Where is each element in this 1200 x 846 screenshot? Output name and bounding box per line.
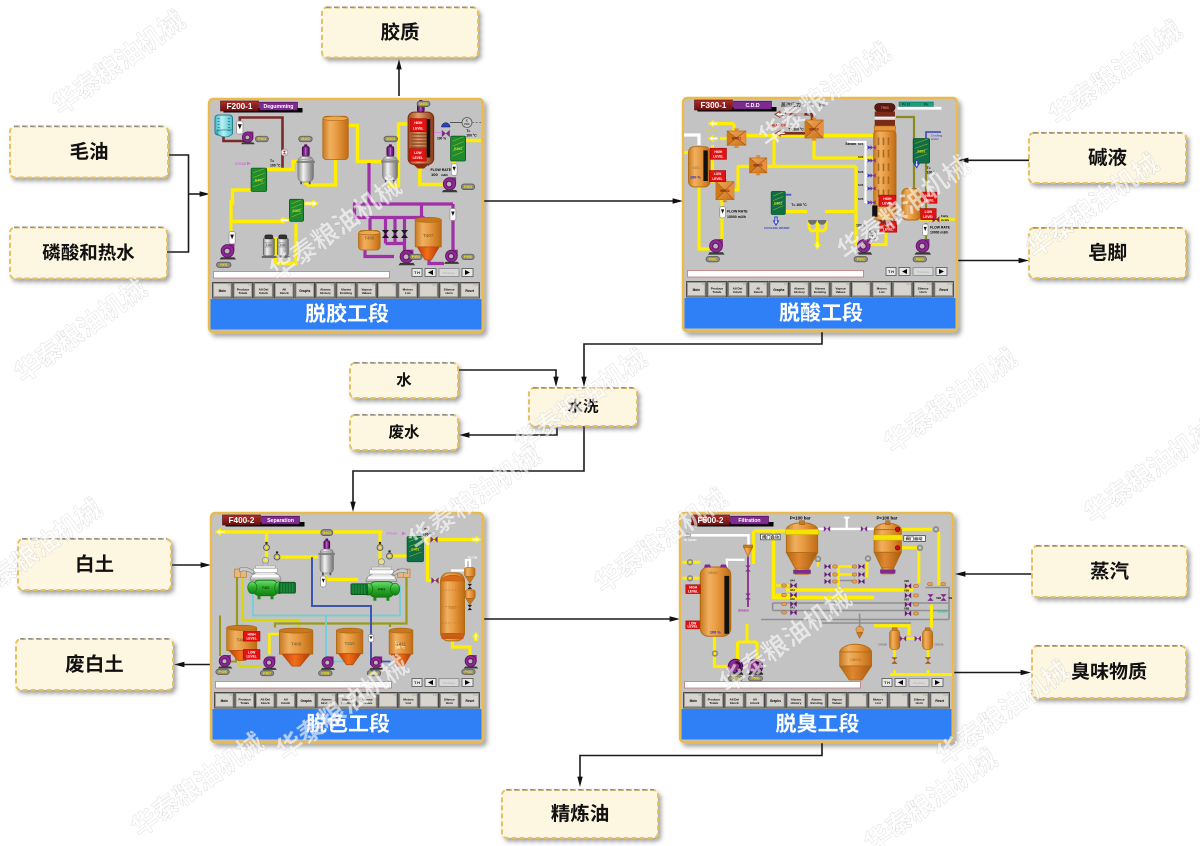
svg-text:F300-1: F300-1 — [701, 101, 727, 110]
svg-text:water: water — [930, 137, 940, 141]
svg-text:Previous: Previous — [443, 271, 455, 275]
svg-text:Horn: Horn — [916, 701, 923, 705]
svg-text:Reset: Reset — [935, 699, 945, 703]
svg-text:Values: Values — [362, 291, 372, 295]
svg-text:SV4: SV4 — [858, 183, 864, 187]
svg-text:List: List — [406, 701, 412, 705]
svg-text:V801: V801 — [692, 166, 700, 170]
svg-text:T407: T407 — [423, 233, 434, 238]
svg-text:VB2: VB2 — [936, 596, 942, 600]
svg-text:Totals: Totals — [712, 290, 721, 294]
svg-text:TH03: TH03 — [881, 106, 889, 110]
svg-text:HIGH: HIGH — [414, 121, 423, 125]
svg-text:LEVEL: LEVEL — [713, 155, 723, 159]
svg-text:Main: Main — [690, 699, 697, 703]
svg-text:M401: M401 — [419, 102, 428, 106]
svg-text:Values: Values — [832, 701, 842, 705]
svg-text:T409: T409 — [291, 642, 302, 647]
svg-text:Previous: Previous — [913, 681, 925, 685]
svg-text:CB004: CB004 — [708, 571, 718, 575]
svg-text:F11: F11 — [903, 693, 908, 697]
svg-text:F12: F12 — [923, 693, 928, 697]
svg-text:T= 100 °C: T= 100 °C — [791, 203, 807, 207]
svg-text:T=: T= — [466, 129, 470, 133]
svg-text:Reset: Reset — [939, 288, 949, 292]
svg-text:P405: P405 — [464, 185, 472, 189]
svg-text:F12: F12 — [453, 693, 458, 697]
svg-text:LOW: LOW — [714, 172, 721, 176]
svg-text:P802: P802 — [857, 257, 865, 261]
svg-text:P406: P406 — [464, 255, 472, 259]
svg-text:M402: M402 — [301, 137, 310, 141]
svg-text:COOLING WATER: COOLING WATER — [764, 226, 790, 230]
svg-text:BR01: BR01 — [732, 136, 741, 140]
svg-text:E401: E401 — [255, 178, 263, 182]
svg-text:Px 10: Px 10 — [902, 103, 911, 107]
svg-text:P408: P408 — [321, 671, 329, 675]
svg-text:F13: F13 — [944, 693, 949, 697]
svg-text:ZHG08: ZHG08 — [878, 643, 887, 647]
svg-text:Totals: Totals — [709, 701, 718, 705]
svg-text:Inlock: Inlock — [280, 291, 289, 295]
svg-text:SV3: SV3 — [858, 170, 864, 174]
svg-text:F12: F12 — [453, 283, 458, 287]
svg-text:100 %: 100 % — [710, 631, 721, 635]
svg-text:M403: M403 — [323, 531, 332, 535]
svg-text:BR02: BR02 — [753, 164, 762, 168]
svg-text:T H: T H — [884, 681, 890, 685]
svg-text:E801: E801 — [917, 149, 925, 153]
svg-text:T H: T H — [414, 271, 420, 275]
svg-text:BR03: BR03 — [809, 127, 818, 131]
svg-text:P403: P403 — [258, 137, 266, 141]
svg-text:100 °C: 100 °C — [395, 646, 405, 650]
svg-text:STEAM: STEAM — [386, 532, 397, 536]
svg-text:Main: Main — [221, 699, 228, 703]
svg-text:F11: F11 — [907, 282, 912, 286]
svg-text:Inlock: Inlock — [259, 291, 268, 295]
svg-text:LEVEL: LEVEL — [687, 625, 697, 629]
svg-text:100 %: 100 % — [437, 137, 446, 141]
svg-text:ZHG09: ZHG09 — [934, 643, 943, 647]
svg-text:LEVEL: LEVEL — [246, 655, 256, 659]
svg-text:History: History — [320, 291, 331, 295]
svg-text:VB6: VB6 — [904, 589, 910, 593]
svg-text:P404: P404 — [412, 255, 420, 259]
svg-text:Inlock: Inlock — [754, 290, 763, 294]
svg-text:FLOW RATE: FLOW RATE — [930, 226, 951, 230]
svg-text:T H: T H — [888, 270, 894, 274]
svg-text:LOW: LOW — [925, 210, 932, 214]
svg-text:P=100 bar: P=100 bar — [790, 515, 811, 520]
svg-text:Values: Values — [836, 290, 846, 294]
svg-text:LEVEL: LEVEL — [413, 156, 423, 160]
svg-text:F10: F10 — [882, 693, 887, 697]
svg-text:STEAM: STEAM — [235, 162, 247, 166]
svg-text:VA4: VA4 — [790, 579, 795, 583]
svg-text:TO GM: TO GM — [468, 556, 478, 560]
svg-text:100 °C: 100 °C — [466, 134, 477, 138]
svg-text:F403: F403 — [378, 588, 385, 592]
svg-text:TO CB001: TO CB001 — [683, 538, 697, 542]
svg-text:F11: F11 — [433, 693, 438, 697]
svg-text:Pa: Pa — [924, 103, 928, 107]
svg-text:F200-1: F200-1 — [227, 102, 253, 111]
svg-text:F401: F401 — [280, 243, 286, 247]
svg-text:F13: F13 — [948, 282, 953, 286]
svg-text:F401: F401 — [266, 243, 272, 247]
svg-text:CB010: CB010 — [850, 658, 861, 662]
svg-text:LEVEL: LEVEL — [246, 637, 256, 641]
svg-text:P=100 bar: P=100 bar — [877, 515, 898, 520]
svg-text:SV1: SV1 — [858, 142, 864, 146]
svg-text:SV2: SV2 — [858, 155, 864, 159]
svg-text:LEVEL: LEVEL — [923, 215, 933, 219]
svg-text:P406: P406 — [219, 670, 227, 674]
svg-text:F10: F10 — [886, 282, 891, 286]
svg-text:FLOW RATE: FLOW RATE — [727, 210, 748, 214]
svg-text:VB5: VB5 — [904, 579, 910, 583]
svg-text:LEVEL: LEVEL — [413, 127, 423, 131]
svg-text:Acids: Acids — [941, 218, 950, 222]
svg-text:Horn: Horn — [919, 290, 926, 294]
svg-text:Degumming: Degumming — [264, 104, 294, 110]
svg-text:List: List — [879, 290, 885, 294]
svg-text:P803: P803 — [916, 257, 924, 261]
svg-text:Main: Main — [219, 289, 226, 293]
svg-text:Graphs: Graphs — [770, 699, 781, 703]
svg-text:E401: E401 — [411, 548, 419, 552]
svg-text:E802: E802 — [774, 202, 782, 206]
svg-text:Existing: Existing — [810, 701, 822, 705]
svg-text:10000 m3/h: 10000 m3/h — [930, 231, 948, 235]
svg-text:PRC: PRC — [464, 122, 470, 126]
svg-text:SV5: SV5 — [858, 197, 864, 201]
svg-text:C.D.D: C.D.D — [745, 103, 759, 109]
svg-text:Inlock: Inlock — [733, 290, 742, 294]
svg-text:HEAT OIL: HEAT OIL — [705, 128, 719, 132]
svg-text:E403: E403 — [454, 147, 462, 151]
svg-text:Inlock: Inlock — [261, 701, 270, 705]
svg-text:P801: P801 — [709, 257, 717, 261]
svg-text:P410: P410 — [464, 670, 472, 674]
svg-text:Existing: Existing — [340, 291, 352, 295]
svg-text:VA2: VA2 — [790, 597, 795, 601]
svg-text:Inlock: Inlock — [281, 701, 290, 705]
svg-text:F400-2: F400-2 — [229, 516, 255, 525]
svg-text:Reset: Reset — [465, 699, 475, 703]
svg-text:LOW: LOW — [414, 151, 421, 155]
svg-text:Existing: Existing — [814, 290, 826, 294]
svg-text:List: List — [875, 701, 881, 705]
svg-text:Graphs: Graphs — [301, 699, 312, 703]
svg-text:T410: T410 — [344, 641, 355, 646]
svg-text:10000 m3/h: 10000 m3/h — [727, 215, 746, 219]
svg-text:T=: T= — [927, 166, 931, 170]
svg-text:BR02: BR02 — [720, 189, 729, 193]
svg-text:History: History — [791, 701, 802, 705]
svg-text:LEVEL: LEVEL — [712, 177, 722, 181]
svg-text:HIGH: HIGH — [883, 197, 892, 201]
svg-text:E402: E402 — [293, 209, 301, 213]
svg-text:Filtration: Filtration — [738, 518, 760, 524]
svg-text:F402: F402 — [262, 586, 269, 590]
svg-text:Horn: Horn — [446, 701, 453, 705]
svg-text:Separation: Separation — [267, 518, 294, 524]
svg-text:100 %: 100 % — [690, 176, 701, 180]
svg-text:VB7: VB7 — [904, 598, 910, 602]
svg-text:Totals: Totals — [240, 701, 249, 705]
svg-text:Steam: Steam — [738, 609, 749, 613]
svg-text:T=: T= — [270, 159, 274, 163]
svg-text:Inlock: Inlock — [730, 701, 739, 705]
svg-text:m3/h: m3/h — [441, 173, 448, 177]
svg-text:LEVEL: LEVEL — [688, 589, 698, 593]
svg-text:Previous: Previous — [443, 681, 455, 685]
svg-text:T405: T405 — [364, 235, 375, 240]
svg-text:100 °C: 100 °C — [270, 163, 281, 167]
svg-text:M403: M403 — [387, 137, 396, 141]
svg-text:List: List — [405, 291, 411, 295]
svg-text:Graphs: Graphs — [299, 289, 310, 293]
svg-text:VA1: VA1 — [790, 606, 795, 610]
svg-text:F11: F11 — [433, 283, 438, 287]
svg-text:P407: P407 — [263, 671, 271, 675]
svg-text:HIGH: HIGH — [714, 150, 723, 154]
svg-text:Steam: Steam — [845, 142, 856, 146]
svg-text:Main: Main — [693, 288, 700, 292]
svg-text:F10: F10 — [412, 693, 417, 697]
svg-text:F12: F12 — [927, 282, 932, 286]
svg-text:Reset: Reset — [465, 289, 475, 293]
svg-text:T=: T= — [395, 641, 399, 645]
svg-text:HYD: HYD — [220, 263, 228, 267]
svg-text:Graphs: Graphs — [773, 288, 784, 292]
svg-text:VB8: VB8 — [904, 607, 910, 611]
svg-text:History: History — [794, 290, 805, 294]
svg-text:Totals: Totals — [238, 291, 247, 295]
svg-text:Previous: Previous — [917, 270, 929, 274]
svg-text:T H: T H — [414, 681, 420, 685]
svg-text:F13: F13 — [474, 693, 479, 697]
svg-text:F10: F10 — [412, 283, 417, 287]
svg-text:Horn: Horn — [445, 291, 452, 295]
svg-text:F13: F13 — [474, 283, 479, 287]
svg-text:Inlock: Inlock — [750, 701, 759, 705]
svg-text:100: 100 — [431, 172, 438, 177]
svg-text:Steam: Steam — [937, 610, 947, 614]
svg-text:VA3: VA3 — [790, 588, 795, 592]
